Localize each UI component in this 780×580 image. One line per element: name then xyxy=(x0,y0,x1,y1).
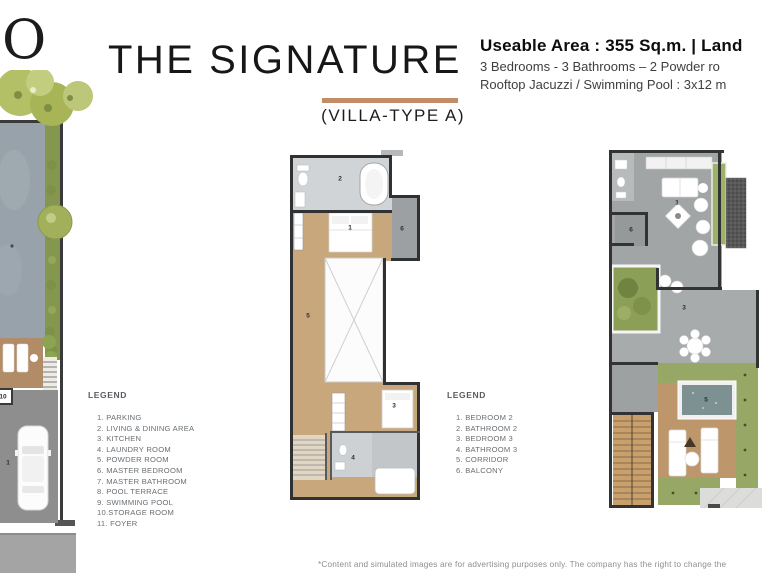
title-underline xyxy=(322,98,458,103)
bedrooms-bathrooms-text: 3 Bedrooms - 3 Bathrooms – 2 Powder ro xyxy=(480,59,743,74)
stairs xyxy=(293,435,325,480)
legend-item: 6. BALCONY xyxy=(456,466,517,477)
second-floor-plan xyxy=(283,150,428,510)
swimming-pool xyxy=(0,123,45,338)
bathroom-2 xyxy=(293,158,392,211)
rooftop-room-6 xyxy=(612,212,648,246)
louver-roof xyxy=(726,178,746,248)
legend-ground-floor: LEGEND 1. PARKING2. LIVING & DINING AREA… xyxy=(88,390,194,530)
useable-area-text: Useable Area : 355 Sq.m. | Land xyxy=(480,36,743,56)
brochure-page: O THE SIGNATURE (VILLA-TYPE A) Useable A… xyxy=(0,0,780,580)
legend-item: 1. PARKING xyxy=(97,413,194,424)
legend-item: 3. KITCHEN xyxy=(97,434,194,445)
ground-floor-site-plan xyxy=(0,70,100,575)
legend-list: 1. BEDROOM 22. BATHROOM 23. BEDROOM 34. … xyxy=(447,413,517,477)
spec-info-block: Useable Area : 355 Sq.m. | Land 3 Bedroo… xyxy=(480,36,743,92)
page-subtitle: (VILLA-TYPE A) xyxy=(245,106,465,126)
bedroom-3-bed xyxy=(382,390,413,428)
legend-item: 7. MASTER BATHROOM xyxy=(97,477,194,488)
page-title: THE SIGNATURE xyxy=(100,38,470,83)
legend-item: 6. MASTER BEDROOM xyxy=(97,466,194,477)
legend-second-floor: LEGEND 1. BEDROOM 22. BATHROOM 23. BEDRO… xyxy=(447,390,517,477)
rooftop-plan xyxy=(608,148,780,563)
disclaimer-text: *Content and simulated images are for ad… xyxy=(318,560,726,569)
legend-item: 10.STORAGE ROOM xyxy=(97,508,194,519)
logo-partial-letter: O xyxy=(2,8,46,71)
legend-item: 9. SWIMMING POOL xyxy=(97,498,194,509)
rooftop-stairs xyxy=(613,415,651,505)
lower-room xyxy=(612,365,658,412)
legend-item: 4. BATHROOM 3 xyxy=(456,445,517,456)
legend-title: LEGEND xyxy=(88,390,194,400)
void-open-space xyxy=(325,258,383,382)
rooftop-pool-text: Rooftop Jacuzzi / Swimming Pool : 3x12 m xyxy=(480,77,743,92)
jacuzzi xyxy=(678,381,736,419)
legend-item: 5. POWDER ROOM xyxy=(97,455,194,466)
legend-item: 2. BATHROOM 2 xyxy=(456,424,517,435)
balcony xyxy=(392,198,417,258)
legend-item: 4. LAUNDRY ROOM xyxy=(97,445,194,456)
legend-title: LEGEND xyxy=(447,390,517,400)
entry-stairs xyxy=(43,357,57,390)
legend-item: 8. POOL TERRACE xyxy=(97,487,194,498)
legend-item: 1. BEDROOM 2 xyxy=(456,413,517,424)
parked-car xyxy=(15,426,51,510)
legend-item: 5. CORRIDOR xyxy=(456,455,517,466)
legend-list: 1. PARKING2. LIVING & DINING AREA3. KITC… xyxy=(88,413,194,530)
road xyxy=(0,533,76,573)
closet xyxy=(332,393,345,431)
storage-room-fragment xyxy=(0,388,13,405)
legend-item: 2. LIVING & DINING AREA xyxy=(97,424,194,435)
hedge-strip xyxy=(45,123,60,360)
legend-item: 11. FOYER xyxy=(97,519,194,530)
legend-item: 3. BEDROOM 3 xyxy=(456,434,517,445)
